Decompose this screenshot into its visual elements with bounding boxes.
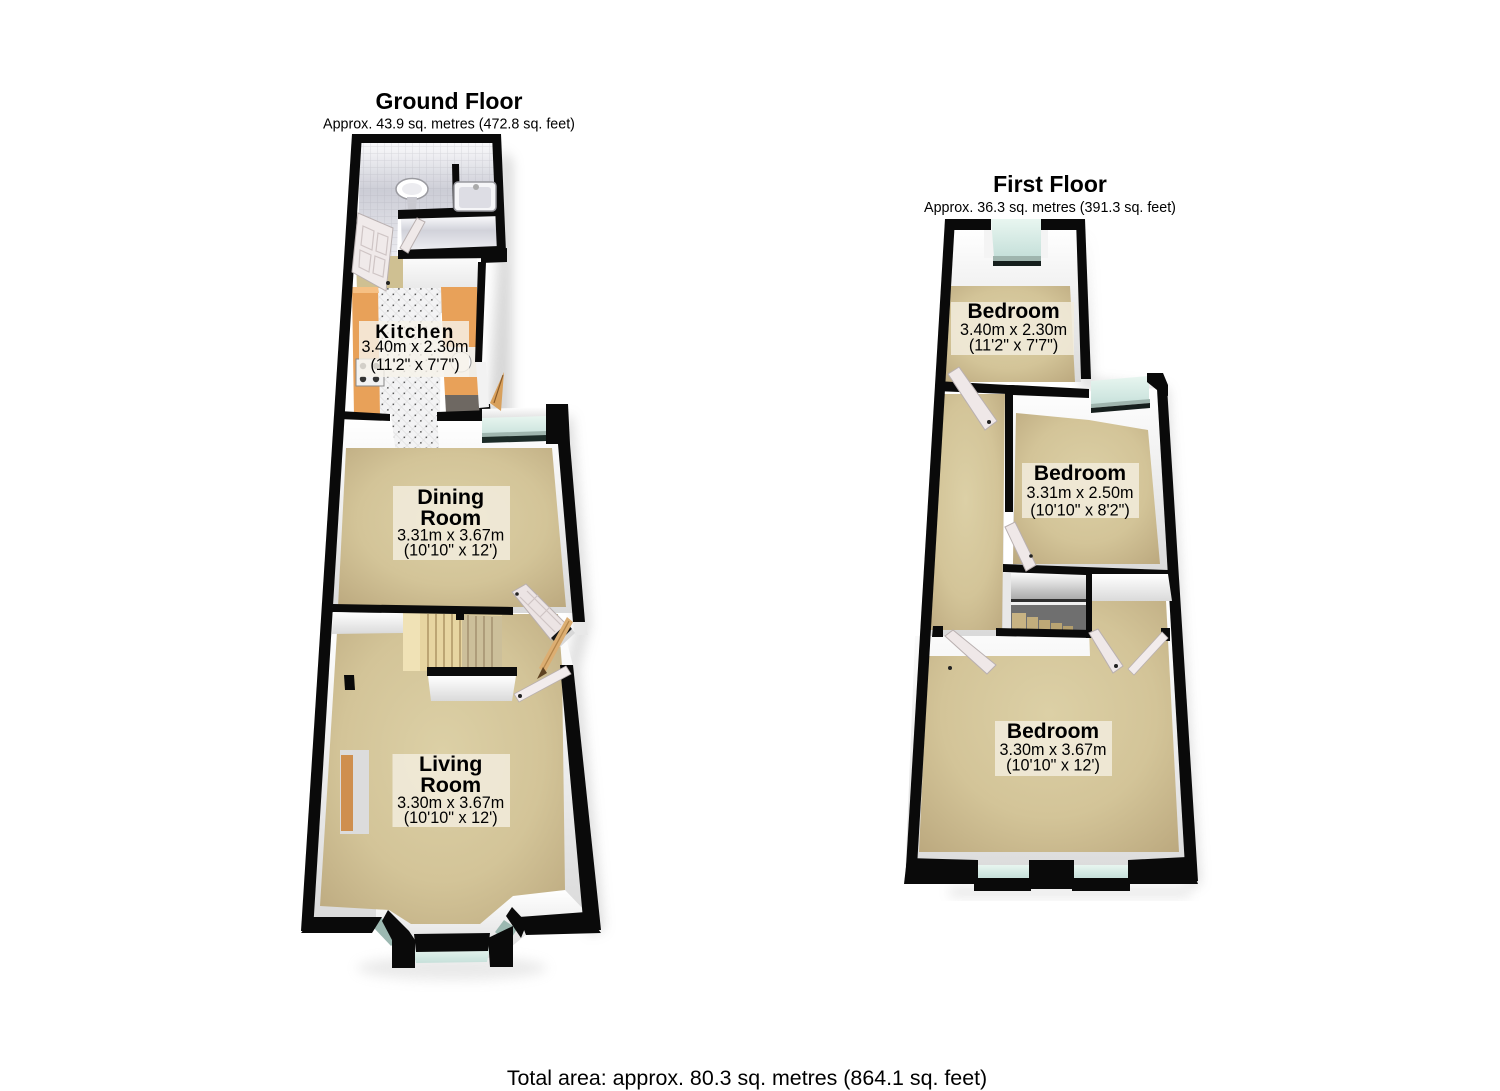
svg-text:Approx. 43.9 sq. metres (472.8: Approx. 43.9 sq. metres (472.8 sq. feet) [323, 117, 575, 133]
svg-text:(11'2" x 7'7"): (11'2" x 7'7") [370, 356, 459, 374]
svg-text:Bedroom: Bedroom [1034, 462, 1126, 485]
svg-text:(10'10" x 12'): (10'10" x 12') [404, 809, 498, 827]
svg-text:(10'10" x 12'): (10'10" x 12') [404, 542, 498, 560]
svg-text:First Floor: First Floor [993, 171, 1107, 197]
svg-text:Ground Floor: Ground Floor [376, 88, 523, 114]
svg-text:3.31m x 2.50m: 3.31m x 2.50m [1026, 484, 1133, 502]
svg-text:Approx. 36.3 sq. metres (391.3: Approx. 36.3 sq. metres (391.3 sq. feet) [924, 200, 1176, 216]
svg-text:3.40m x 2.30m: 3.40m x 2.30m [361, 338, 468, 356]
svg-text:Bedroom: Bedroom [968, 300, 1060, 323]
svg-text:(10'10" x 12'): (10'10" x 12') [1006, 757, 1100, 775]
svg-text:(11'2" x 7'7"): (11'2" x 7'7") [969, 337, 1058, 355]
svg-text:Bedroom: Bedroom [1007, 720, 1099, 743]
svg-text:(10'10" x 8'2"): (10'10" x 8'2") [1030, 502, 1130, 520]
svg-text:Total area: approx. 80.3 sq. m: Total area: approx. 80.3 sq. metres (864… [507, 1066, 987, 1090]
